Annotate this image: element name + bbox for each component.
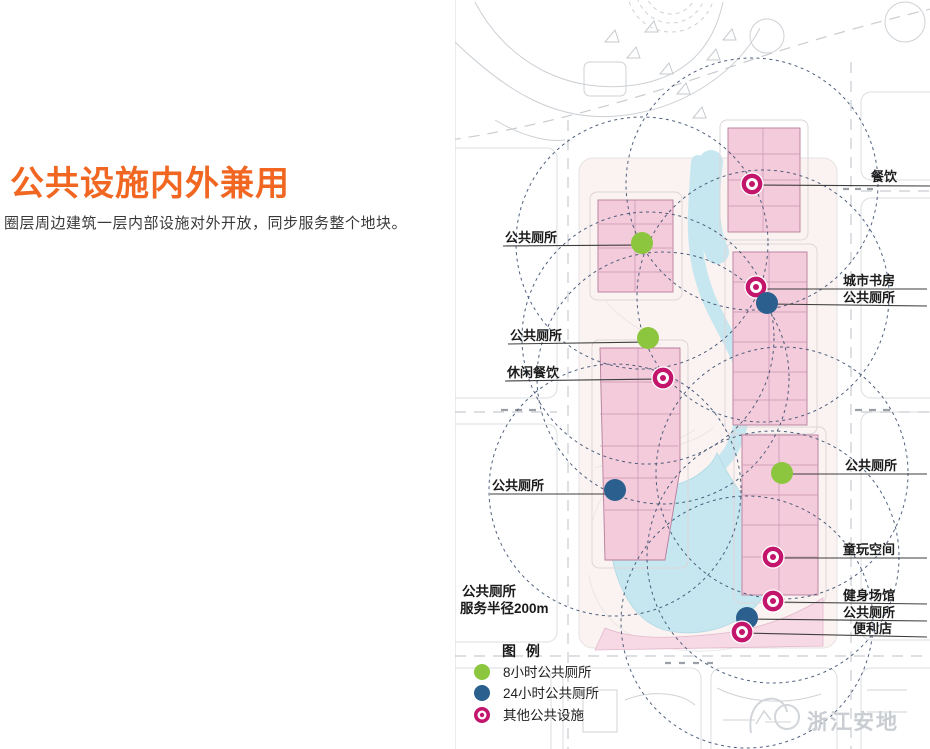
label-public-toilet: 公共厕所 — [843, 290, 895, 305]
legend-label-other-facility: 其他公共设施 — [503, 708, 584, 723]
label-city-study: 城市书房 — [843, 273, 895, 288]
label-public-toilet: 公共厕所 — [845, 458, 897, 473]
legend-swatch-toilet-24h — [474, 685, 490, 701]
page-subtitle: 圈层周边建筑一层内部设施对外开放，同步服务整个地块。 — [4, 212, 449, 233]
label-public-toilet: 公共厕所 — [492, 478, 544, 493]
label-convenience-store: 便利店 — [853, 621, 892, 636]
legend-swatch-other-facility — [474, 707, 490, 723]
label-kids-play-space: 童玩空间 — [843, 542, 895, 557]
legend-title: 图 例 — [502, 643, 543, 659]
slide: 公共设施内外兼用 圈层周边建筑一层内部设施对外开放，同步服务整个地块。 — [0, 0, 930, 749]
marker-other-facility — [652, 367, 674, 389]
site-plan-map: 餐饮 公共厕所 城市书房 公共厕所 公共厕所 休闲餐饮 公共厕所 公共厕所 童玩… — [455, 0, 930, 749]
marker-toilet-8h — [631, 232, 653, 254]
label-dining: 餐饮 — [870, 169, 898, 184]
text-panel: 公共设施内外兼用 圈层周边建筑一层内部设施对外开放，同步服务整个地块。 — [0, 0, 455, 749]
legend-label-toilet-24h: 24小时公共厕所 — [503, 686, 599, 701]
marker-toilet-8h — [637, 327, 659, 349]
marker-other-facility — [762, 590, 784, 612]
legend-swatch-toilet-8h — [474, 664, 490, 680]
radius-note-line2: 服务半径200m — [460, 600, 549, 616]
label-leisure-dining: 休闲餐饮 — [506, 365, 560, 380]
radius-note-line1: 公共厕所 — [462, 583, 516, 599]
legend: 图 例 8小时公共厕所 24小时公共厕所 其他公共设施 — [474, 643, 599, 723]
label-public-toilet: 公共厕所 — [843, 605, 895, 620]
page-title: 公共设施内外兼用 — [10, 156, 290, 205]
marker-other-facility — [741, 173, 763, 195]
marker-toilet-24h — [756, 292, 778, 314]
marker-toilet-8h — [771, 462, 793, 484]
park-linework — [455, 0, 925, 140]
marker-toilet-24h — [604, 479, 626, 501]
label-public-toilet: 公共厕所 — [505, 230, 557, 245]
label-fitness-venue: 健身场馆 — [843, 588, 895, 603]
company-logo-icon — [750, 699, 799, 733]
company-watermark: 浙江安地 — [807, 710, 899, 734]
marker-other-facility — [731, 621, 753, 643]
radius-note: 公共厕所 服务半径200m — [460, 583, 549, 616]
label-public-toilet: 公共厕所 — [510, 328, 562, 343]
marker-other-facility — [762, 546, 784, 568]
legend-label-toilet-8h: 8小时公共厕所 — [503, 665, 592, 680]
